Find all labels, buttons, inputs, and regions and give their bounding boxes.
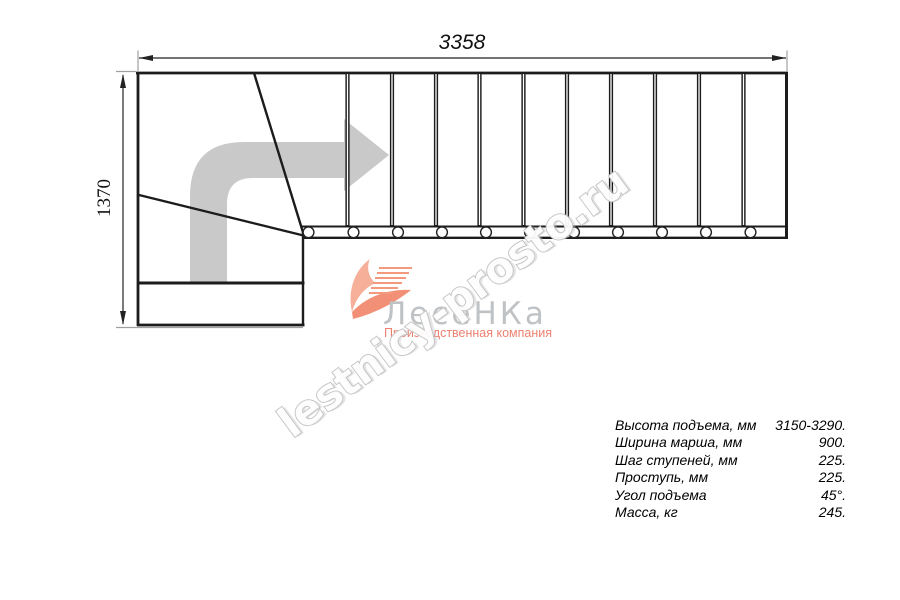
spec-label: Масса, кг bbox=[615, 504, 678, 521]
stair-plan-page: 3358 1370 ЛесеНКа Производственная компа… bbox=[0, 0, 900, 600]
spec-row-angle: Угол подъема 45°. bbox=[615, 487, 846, 504]
spec-row-height: Высота подъема, мм 3150-3290. bbox=[615, 417, 846, 434]
spec-value: 3150-3290. bbox=[775, 417, 846, 434]
spec-value: 45°. bbox=[821, 487, 846, 504]
spec-row-tread: Проступь, мм 225. bbox=[615, 469, 846, 486]
specifications-table: Высота подъема, мм 3150-3290. Ширина мар… bbox=[615, 417, 846, 521]
spec-row-mass: Масса, кг 245. bbox=[615, 504, 846, 521]
spec-row-step: Шаг ступеней, мм 225. bbox=[615, 452, 846, 469]
spec-label: Высота подъема, мм bbox=[615, 417, 757, 434]
height-dimension-line bbox=[120, 74, 126, 325]
spec-label: Угол подъема bbox=[615, 487, 707, 504]
spec-label: Шаг ступеней, мм bbox=[615, 452, 738, 469]
spec-value: 245. bbox=[819, 504, 846, 521]
spec-value: 225. bbox=[819, 469, 846, 486]
spec-value: 225. bbox=[819, 452, 846, 469]
spec-row-march-width: Ширина марша, мм 900. bbox=[615, 434, 846, 451]
spec-label: Проступь, мм bbox=[615, 469, 708, 486]
width-dimension-value: 3358 bbox=[392, 31, 532, 55]
width-dimension-line bbox=[139, 55, 786, 61]
spec-value: 900. bbox=[819, 434, 846, 451]
height-dimension-value: 1370 bbox=[94, 163, 116, 233]
spec-label: Ширина марша, мм bbox=[615, 434, 742, 451]
